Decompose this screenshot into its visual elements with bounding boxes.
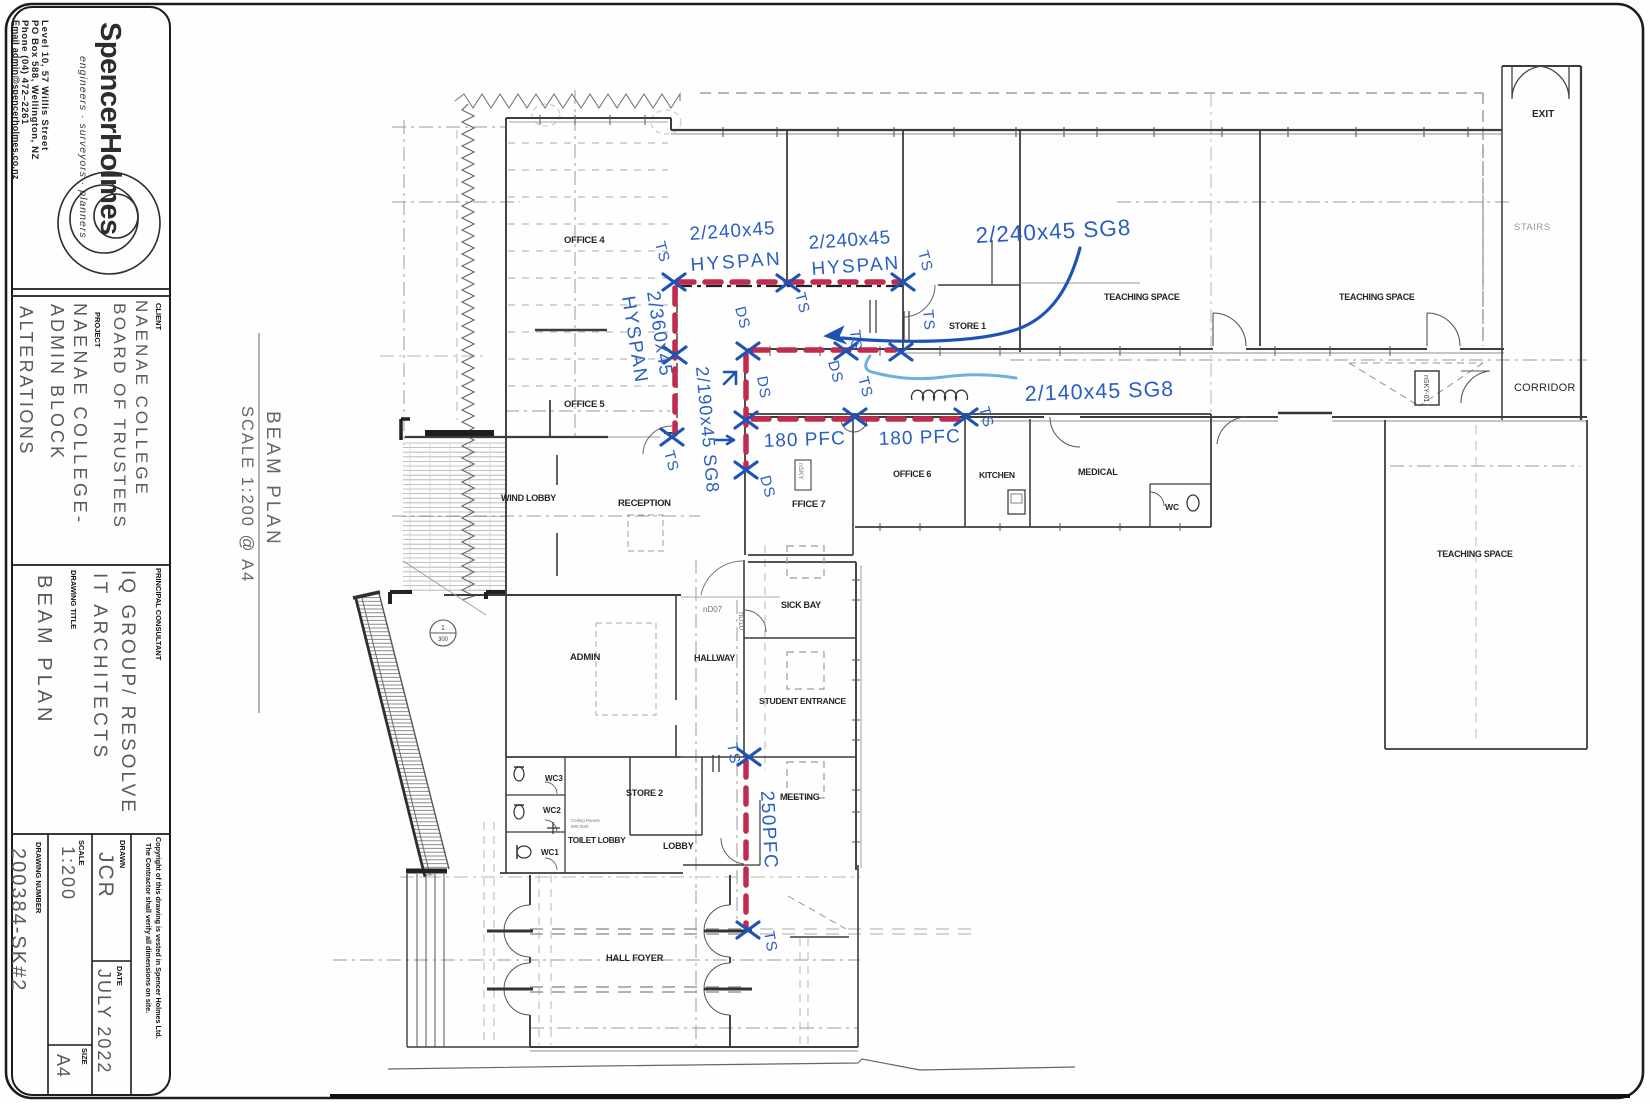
svg-text:DRAWING TITLE: DRAWING TITLE	[69, 570, 78, 629]
svg-text:TEACHING SPACE: TEACHING SPACE	[1437, 549, 1513, 559]
svg-text:ALTERATIONS: ALTERATIONS	[16, 306, 36, 456]
svg-text:WC2: WC2	[543, 806, 561, 815]
svg-text:180 PFC: 180 PFC	[878, 426, 961, 450]
svg-text:nD10: nD10	[737, 612, 746, 630]
svg-text:300: 300	[438, 637, 449, 643]
svg-text:Ceiling Panels: Ceiling Panels	[571, 818, 601, 823]
svg-text:LOBBY: LOBBY	[663, 841, 694, 851]
svg-text:JULY 2022: JULY 2022	[94, 969, 114, 1074]
svg-text:TS: TS	[723, 742, 743, 766]
svg-text:TS: TS	[760, 930, 780, 954]
svg-text:1: 1	[441, 625, 445, 632]
svg-text:SICK BAY: SICK BAY	[781, 600, 821, 610]
svg-text:WIND LOBBY: WIND LOBBY	[501, 493, 556, 503]
svg-text:nSKY: nSKY	[797, 463, 804, 480]
svg-text:PROJECT: PROJECT	[93, 312, 102, 348]
svg-text:STUDENT ENTRANCE: STUDENT ENTRANCE	[759, 696, 846, 706]
svg-text:STAIRS: STAIRS	[1514, 222, 1551, 233]
svg-text:HALL FOYER: HALL FOYER	[606, 953, 664, 963]
svg-text:SCALE 1:200 @ A4: SCALE 1:200 @ A4	[238, 406, 256, 583]
svg-text:FFICE 7: FFICE 7	[792, 499, 825, 510]
svg-text:WC1: WC1	[541, 848, 559, 857]
svg-text:IQ GROUP/ RESOLVE: IQ GROUP/ RESOLVE	[117, 570, 138, 815]
svg-text:BEAM PLAN: BEAM PLAN	[33, 575, 55, 725]
svg-text:The Contractor shall verify al: The Contractor shall verify all dimensio…	[144, 843, 153, 1013]
svg-text:1:200: 1:200	[58, 846, 78, 901]
svg-text:TOILET LOBBY: TOILET LOBBY	[568, 835, 626, 845]
svg-text:ADMIN: ADMIN	[570, 652, 600, 663]
svg-text:NAENAE COLLEGE-: NAENAE COLLEGE-	[70, 303, 90, 526]
svg-text:STORE 2: STORE 2	[626, 788, 663, 798]
svg-text:BEAM PLAN: BEAM PLAN	[262, 411, 283, 547]
svg-text:RECEPTION: RECEPTION	[618, 498, 671, 509]
svg-text:DRAWING NUMBER: DRAWING NUMBER	[34, 842, 43, 914]
svg-text:SIZE: SIZE	[80, 1048, 89, 1065]
svg-text:TEACHING SPACE: TEACHING SPACE	[1104, 292, 1180, 302]
svg-text:BOARD OF TRUSTEES: BOARD OF TRUSTEES	[110, 303, 129, 529]
svg-text:180 PFC: 180 PFC	[763, 428, 846, 452]
svg-text:DATE: DATE	[115, 966, 124, 986]
svg-text:OFFICE 6: OFFICE 6	[893, 469, 931, 479]
svg-text:900 /540: 900 /540	[571, 824, 589, 829]
svg-text:EXIT: EXIT	[1532, 109, 1554, 120]
svg-text:HALLWAY: HALLWAY	[694, 653, 735, 663]
svg-text:nD07: nD07	[703, 605, 723, 614]
svg-text:TS: TS	[919, 309, 938, 332]
svg-text:nSKY-01: nSKY-01	[1422, 375, 1429, 402]
svg-text:IT ARCHITECTS: IT ARCHITECTS	[89, 573, 110, 761]
svg-text:CLIENT: CLIENT	[154, 303, 163, 331]
svg-text:TEACHING SPACE: TEACHING SPACE	[1339, 292, 1415, 302]
svg-text:OFFICE 4: OFFICE 4	[564, 235, 605, 246]
svg-text:ADMIN BLOCK: ADMIN BLOCK	[47, 304, 67, 461]
svg-text:Email admin@spencerholmes.co.n: Email admin@spencerholmes.co.nz	[11, 20, 21, 180]
svg-text:Copyright of this drawing is v: Copyright of this drawing is vested in S…	[154, 837, 163, 1039]
svg-text:KITCHEN: KITCHEN	[979, 470, 1015, 480]
svg-text:NAENAE COLLEGE: NAENAE COLLEGE	[132, 300, 151, 497]
svg-text:DRAWN: DRAWN	[118, 840, 127, 868]
svg-text:200384-SK#2: 200384-SK#2	[7, 848, 29, 992]
svg-text:CORRIDOR: CORRIDOR	[1514, 382, 1576, 394]
svg-text:A4: A4	[53, 1054, 73, 1078]
svg-text:WC3: WC3	[545, 774, 563, 783]
svg-text:PRINCIPAL CONSULTANT: PRINCIPAL CONSULTANT	[154, 568, 163, 661]
svg-text:OFFICE 5: OFFICE 5	[564, 399, 605, 410]
svg-text:JCR: JCR	[94, 852, 117, 899]
svg-text:MEDICAL: MEDICAL	[1078, 467, 1118, 477]
svg-text:MEETING: MEETING	[780, 792, 820, 802]
svg-text:STORE 1: STORE 1	[949, 321, 986, 331]
svg-text:WC: WC	[1165, 502, 1179, 512]
svg-text:engineers · surveyors · pl: engineers · surveyors · planners	[77, 56, 89, 239]
svg-text:250PFC: 250PFC	[756, 790, 781, 870]
